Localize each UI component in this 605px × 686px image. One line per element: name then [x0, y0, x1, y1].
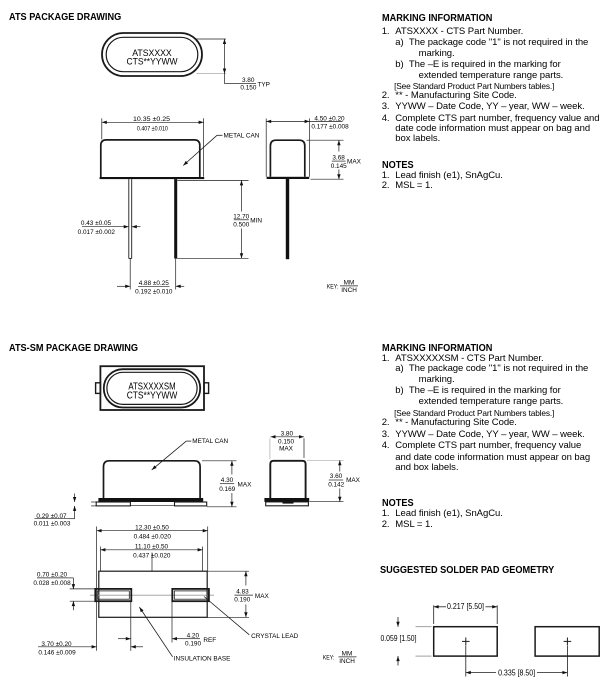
svg-text:CTS**YYWW: CTS**YYWW	[127, 390, 178, 401]
svg-text:11.10 ±0.50: 11.10 ±0.50	[135, 544, 169, 551]
svg-text:CRYSTAL LEAD: CRYSTAL LEAD	[251, 633, 299, 640]
svg-text:MM: MM	[342, 650, 353, 657]
svg-text:0.217 [5.50]: 0.217 [5.50]	[447, 602, 484, 611]
svg-text:0.142: 0.142	[328, 482, 344, 489]
svg-text:MAX: MAX	[255, 593, 270, 600]
svg-text:0.169: 0.169	[219, 486, 235, 493]
svg-text:0.177 ±0.008: 0.177 ±0.008	[311, 124, 349, 131]
svg-text:0.146 ±0.009: 0.146 ±0.009	[38, 650, 76, 657]
svg-text:0.407 ±0.010: 0.407 ±0.010	[137, 125, 168, 132]
svg-text:0.011 ±0.003: 0.011 ±0.003	[34, 521, 71, 528]
svg-text:12.30 ±0.50: 12.30 ±0.50	[135, 525, 169, 532]
svg-text:MAX: MAX	[347, 158, 362, 165]
svg-text:REF: REF	[203, 637, 216, 644]
svg-text:TYP: TYP	[258, 81, 270, 88]
svg-text:0.500: 0.500	[233, 222, 249, 229]
svg-text:0.028 ±0.008: 0.028 ±0.008	[33, 580, 71, 587]
svg-text:0.43 ±0.05: 0.43 ±0.05	[81, 220, 112, 227]
svg-text:MIN: MIN	[250, 217, 262, 224]
svg-text:0.192 ±0.010: 0.192 ±0.010	[135, 289, 173, 296]
svg-text:INCH: INCH	[339, 658, 355, 665]
svg-text:0.150: 0.150	[278, 438, 294, 445]
svg-text:3.68: 3.68	[332, 155, 345, 162]
svg-text:0.335 [8.50]: 0.335 [8.50]	[498, 669, 535, 678]
svg-text:0.145: 0.145	[331, 163, 347, 170]
svg-text:KEY:: KEY:	[327, 284, 339, 291]
svg-text:4.83: 4.83	[236, 589, 249, 596]
svg-text:MAX: MAX	[279, 445, 294, 452]
svg-text:INCH: INCH	[341, 287, 357, 294]
svg-text:0.017 ±0.002: 0.017 ±0.002	[78, 229, 116, 236]
svg-text:3.80: 3.80	[242, 77, 255, 84]
svg-text:12.70: 12.70	[233, 213, 249, 220]
svg-text:0.059 [1.50]: 0.059 [1.50]	[381, 634, 417, 643]
svg-text:METAL CAN: METAL CAN	[224, 132, 260, 139]
svg-text:METAL CAN: METAL CAN	[192, 438, 228, 445]
svg-text:3.60: 3.60	[330, 473, 343, 480]
svg-text:CTS**YYWW: CTS**YYWW	[127, 56, 178, 67]
svg-text:0.190: 0.190	[234, 596, 250, 603]
svg-text:4.30: 4.30	[221, 477, 234, 484]
svg-text:4.20: 4.20	[187, 633, 200, 640]
svg-text:0.150: 0.150	[240, 85, 256, 92]
svg-text:0.484 ±0.020: 0.484 ±0.020	[134, 534, 172, 541]
svg-text:0.70 ±0.20: 0.70 ±0.20	[37, 572, 68, 579]
svg-text:INSULATION BASE: INSULATION BASE	[174, 656, 231, 663]
svg-text:KEY:: KEY:	[323, 654, 335, 661]
svg-text:4.50 ±0.20: 4.50 ±0.20	[314, 115, 345, 122]
svg-text:3.80: 3.80	[281, 430, 294, 437]
svg-text:4.88 ±0.25: 4.88 ±0.25	[139, 280, 170, 287]
svg-text:MAX: MAX	[346, 477, 361, 484]
svg-text:MM: MM	[344, 279, 355, 286]
svg-text:MAX: MAX	[238, 482, 253, 489]
svg-text:0.190: 0.190	[185, 641, 201, 648]
svg-text:10.35 ±0.25: 10.35 ±0.25	[133, 116, 170, 123]
